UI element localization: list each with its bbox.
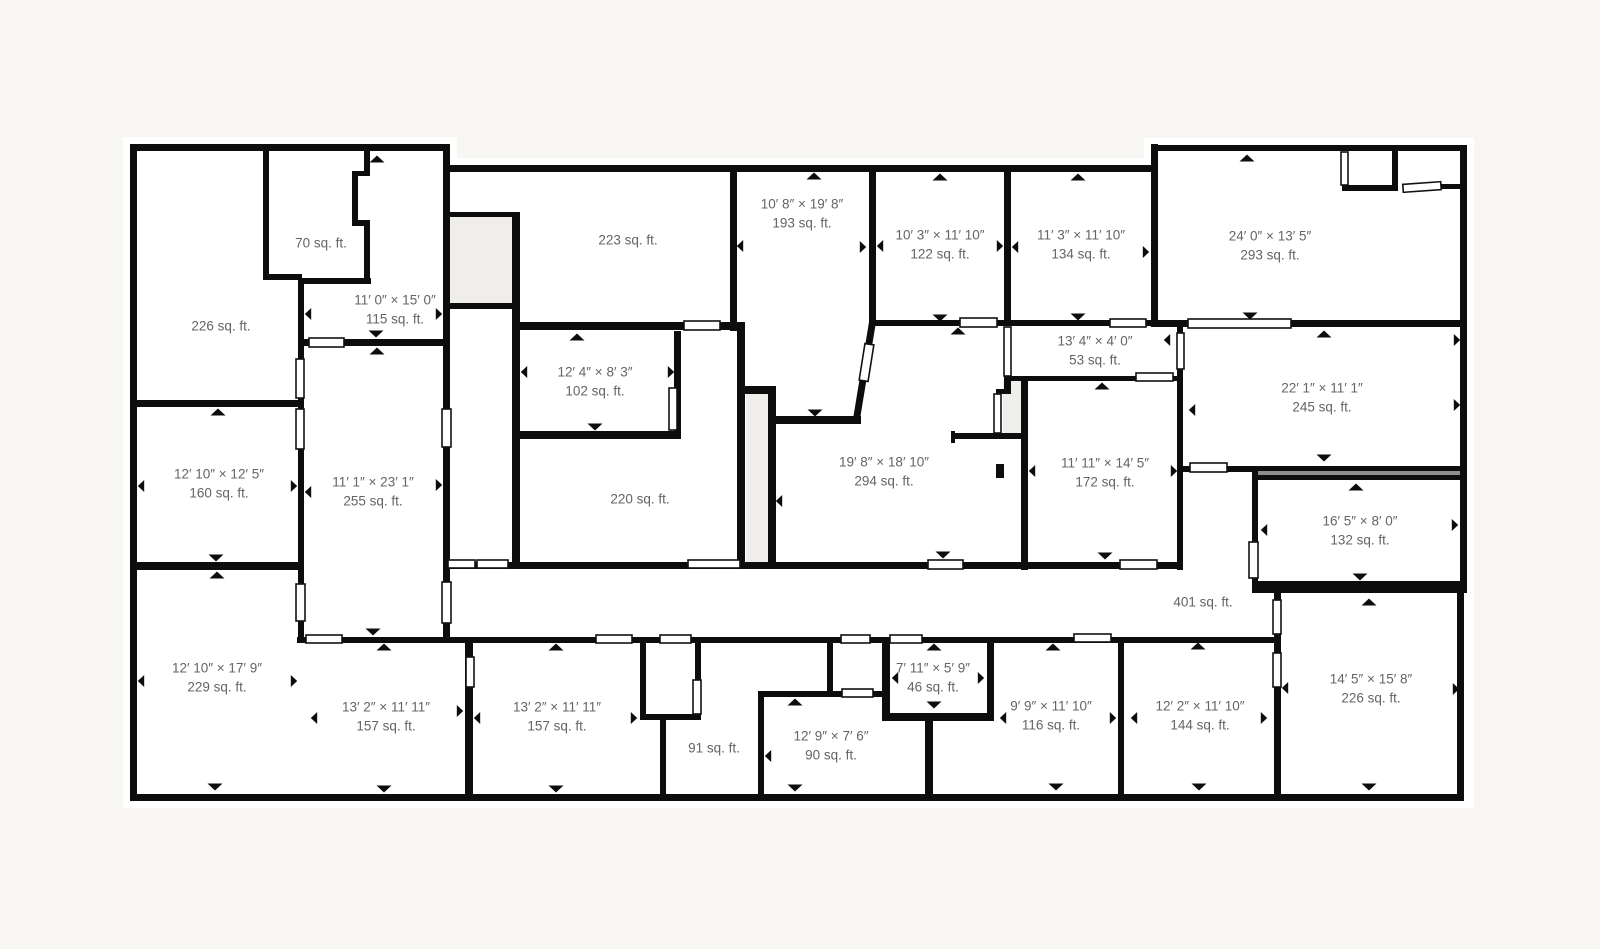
svg-text:9′ 9″ × 11′ 10″: 9′ 9″ × 11′ 10″ (1010, 699, 1092, 714)
svg-text:53 sq. ft.: 53 sq. ft. (1069, 353, 1121, 368)
svg-text:160 sq. ft.: 160 sq. ft. (189, 486, 248, 501)
svg-text:132 sq. ft.: 132 sq. ft. (1330, 533, 1389, 548)
svg-text:12′ 9″ × 7′ 6″: 12′ 9″ × 7′ 6″ (793, 729, 868, 744)
svg-text:157 sq. ft.: 157 sq. ft. (356, 719, 415, 734)
svg-text:11′ 1″ × 23′ 1″: 11′ 1″ × 23′ 1″ (332, 475, 414, 490)
svg-text:70 sq. ft.: 70 sq. ft. (295, 236, 347, 251)
svg-text:12′ 10″ × 17′ 9″: 12′ 10″ × 17′ 9″ (172, 661, 262, 676)
svg-text:12′ 4″ × 8′ 3″: 12′ 4″ × 8′ 3″ (557, 365, 632, 380)
svg-text:226 sq. ft.: 226 sq. ft. (191, 319, 250, 334)
svg-text:22′ 1″ × 11′ 1″: 22′ 1″ × 11′ 1″ (1281, 381, 1363, 396)
svg-text:46 sq. ft.: 46 sq. ft. (907, 680, 959, 695)
svg-text:193 sq. ft.: 193 sq. ft. (772, 216, 831, 231)
svg-text:245 sq. ft.: 245 sq. ft. (1292, 400, 1351, 415)
svg-text:13′ 2″ × 11′ 11″: 13′ 2″ × 11′ 11″ (513, 700, 601, 715)
svg-text:144 sq. ft.: 144 sq. ft. (1170, 718, 1229, 733)
svg-text:16′ 5″ × 8′ 0″: 16′ 5″ × 8′ 0″ (1322, 514, 1397, 529)
svg-text:90 sq. ft.: 90 sq. ft. (805, 748, 857, 763)
svg-text:12′ 10″ × 12′ 5″: 12′ 10″ × 12′ 5″ (174, 467, 264, 482)
svg-text:91 sq. ft.: 91 sq. ft. (688, 741, 740, 756)
svg-text:24′ 0″ × 13′ 5″: 24′ 0″ × 13′ 5″ (1229, 229, 1312, 244)
svg-text:401 sq. ft.: 401 sq. ft. (1173, 595, 1232, 610)
svg-text:10′ 8″ × 19′ 8″: 10′ 8″ × 19′ 8″ (761, 197, 844, 212)
svg-text:172 sq. ft.: 172 sq. ft. (1075, 475, 1134, 490)
svg-text:12′ 2″ × 11′ 10″: 12′ 2″ × 11′ 10″ (1155, 699, 1244, 714)
svg-text:13′ 4″ × 4′ 0″: 13′ 4″ × 4′ 0″ (1057, 334, 1132, 349)
svg-text:10′ 3″ × 11′ 10″: 10′ 3″ × 11′ 10″ (895, 228, 984, 243)
svg-text:122 sq. ft.: 122 sq. ft. (910, 247, 969, 262)
svg-text:293 sq. ft.: 293 sq. ft. (1240, 248, 1299, 263)
svg-text:115 sq. ft.: 115 sq. ft. (366, 312, 424, 327)
svg-text:255 sq. ft.: 255 sq. ft. (343, 494, 402, 509)
svg-text:134 sq. ft.: 134 sq. ft. (1051, 247, 1110, 262)
svg-text:11′ 0″ × 15′ 0″: 11′ 0″ × 15′ 0″ (354, 293, 436, 308)
svg-text:226 sq. ft.: 226 sq. ft. (1341, 691, 1400, 706)
svg-text:157 sq. ft.: 157 sq. ft. (527, 719, 586, 734)
svg-text:7′ 11″ × 5′ 9″: 7′ 11″ × 5′ 9″ (896, 661, 970, 676)
svg-text:294 sq. ft.: 294 sq. ft. (854, 474, 913, 489)
svg-text:19′ 8″ × 18′ 10″: 19′ 8″ × 18′ 10″ (839, 455, 929, 470)
svg-text:11′ 3″ × 11′ 10″: 11′ 3″ × 11′ 10″ (1037, 228, 1125, 243)
svg-text:223 sq. ft.: 223 sq. ft. (598, 233, 657, 248)
svg-text:14′ 5″ × 15′ 8″: 14′ 5″ × 15′ 8″ (1330, 672, 1413, 687)
svg-text:220 sq. ft.: 220 sq. ft. (610, 492, 669, 507)
svg-text:102 sq. ft.: 102 sq. ft. (565, 384, 624, 399)
svg-text:11′ 11″ × 14′ 5″: 11′ 11″ × 14′ 5″ (1061, 456, 1149, 471)
svg-text:116 sq. ft.: 116 sq. ft. (1022, 718, 1080, 733)
svg-text:229 sq. ft.: 229 sq. ft. (187, 680, 246, 695)
svg-text:13′ 2″ × 11′ 11″: 13′ 2″ × 11′ 11″ (342, 700, 430, 715)
